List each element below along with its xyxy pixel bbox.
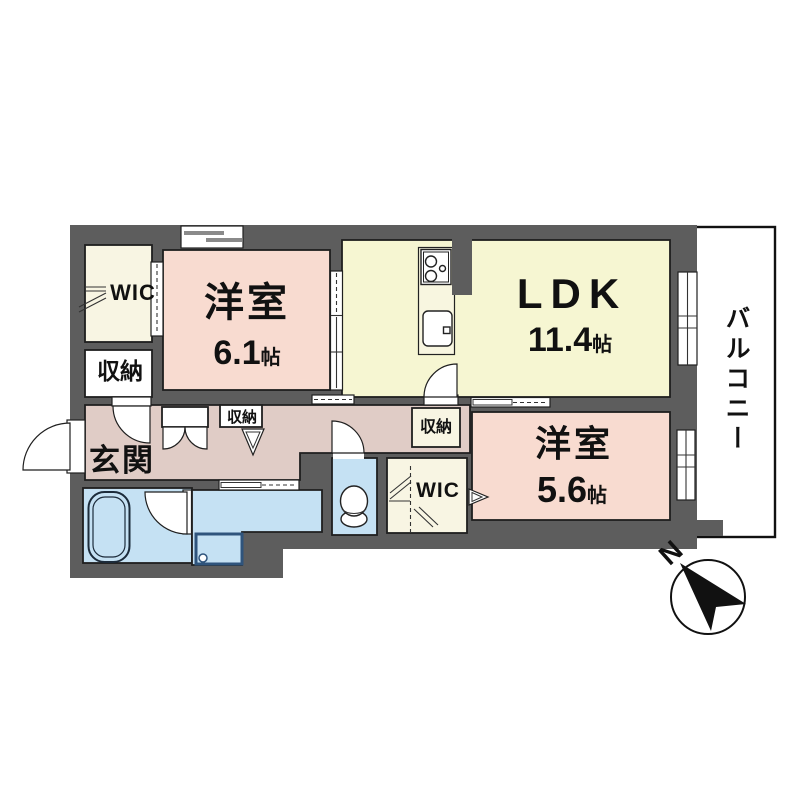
closet-center-label: 収納 [420, 417, 452, 436]
stove-icon [421, 250, 451, 285]
window-top [181, 226, 243, 248]
entrance-door [23, 420, 85, 473]
bedroom2-name-label: 洋室 [535, 423, 613, 464]
balcony-label: バルコニー [722, 305, 750, 455]
opening-hall-kitchen [312, 395, 354, 404]
sliding-door-ldk-bedroom2 [471, 398, 550, 408]
toilet-icon [341, 486, 368, 527]
wall-corner-balcony [697, 520, 723, 536]
room-ldk-kitchen [342, 240, 670, 397]
window-bedroom2-balcony [677, 430, 695, 500]
window-ldk-balcony [678, 272, 697, 365]
floorplan-page: N WIC 収納 洋室 6.1帖 LDK 11.4帖 洋室 5.6帖 玄関 収納… [0, 0, 800, 800]
opening-hall-washroom [219, 480, 299, 490]
closet-west-label: 収納 [97, 358, 143, 384]
closet-hall-label: 収納 [227, 408, 257, 426]
bedroom1-name-label: 洋室 [204, 281, 290, 325]
entrance-door-swing [23, 423, 70, 470]
wic-west-label: WIC [110, 280, 156, 305]
compass: N [653, 534, 746, 634]
wall-kitchen-ldk [452, 225, 472, 295]
box-shoe-cabinet [162, 407, 208, 427]
entrance-label: 玄関 [89, 443, 155, 478]
sliding-door-bedroom1-kitchen [331, 271, 343, 390]
kitchen-sink-icon [423, 311, 452, 346]
floorplan-svg: N WIC 収納 洋室 6.1帖 LDK 11.4帖 洋室 5.6帖 玄関 収納… [0, 0, 800, 800]
ldk-name-label: LDK [517, 270, 627, 317]
wic-center-label: WIC [416, 479, 460, 502]
